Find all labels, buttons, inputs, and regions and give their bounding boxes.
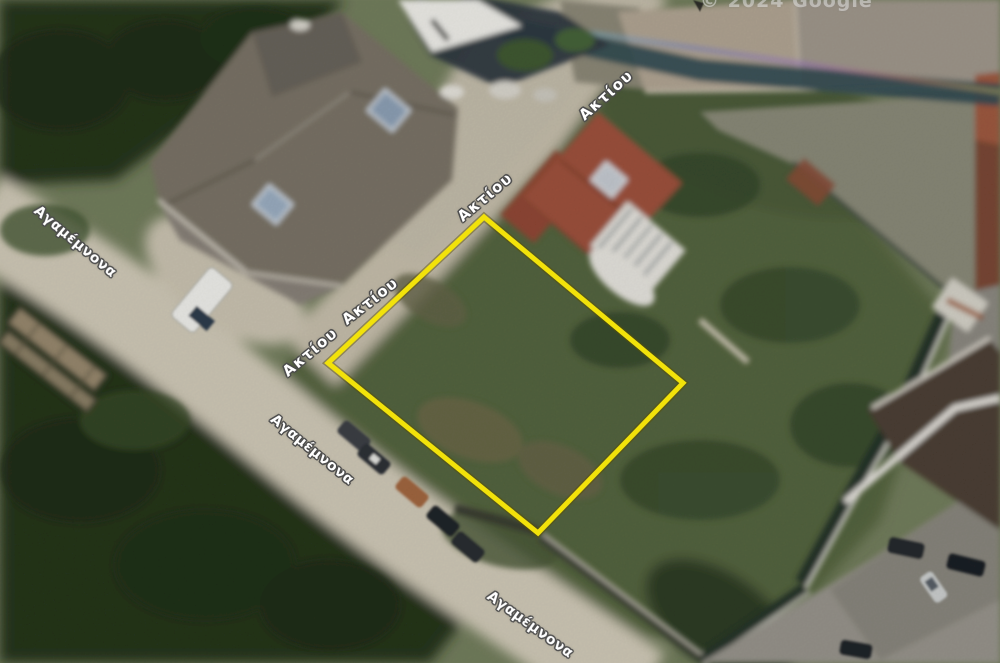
photo-grain (0, 0, 1000, 663)
satellite-imagery (0, 0, 1000, 663)
map-canvas[interactable]: Ακτίου Ακτίου Ακτίου Ακτίου Αγαμέμνονα Α… (0, 0, 1000, 663)
